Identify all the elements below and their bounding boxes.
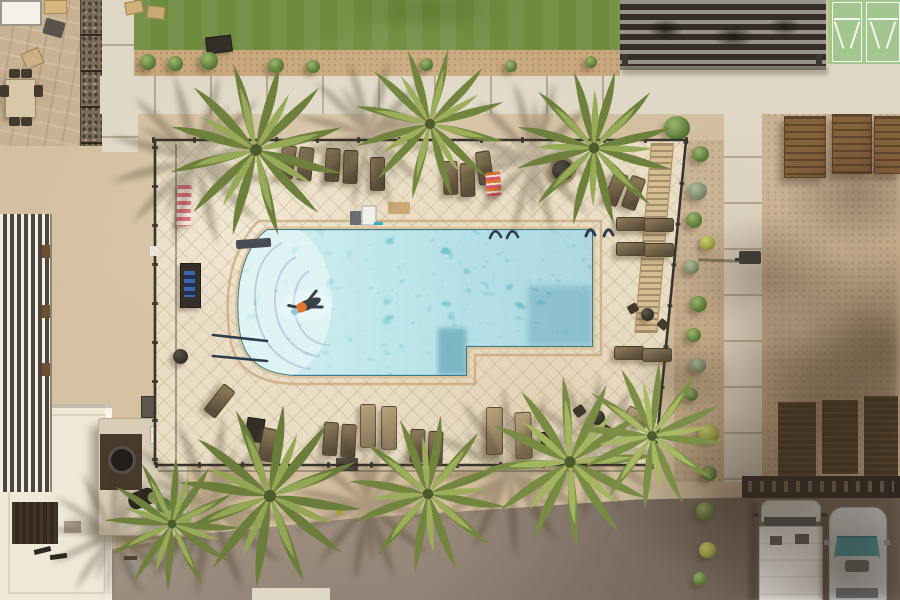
palm-tree-layer [0,0,900,600]
aerial-photo: Top-down drone photo of a fenced resort-… [0,0,900,600]
